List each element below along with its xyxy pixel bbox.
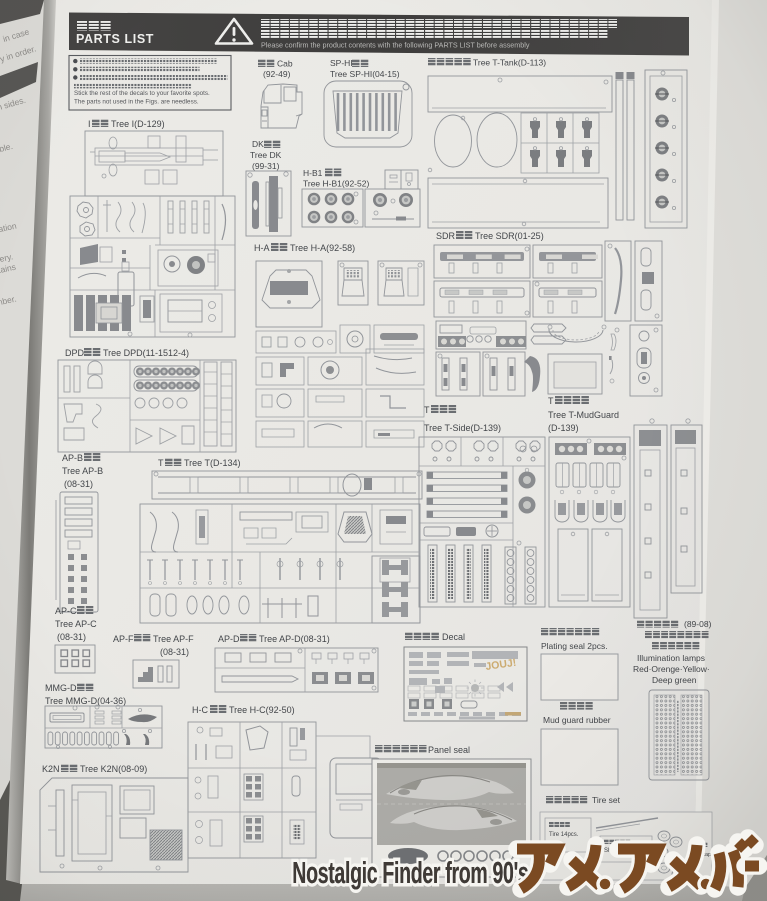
- svg-text:Nostalgic Finder from 90's: Nostalgic Finder from 90's: [292, 857, 528, 891]
